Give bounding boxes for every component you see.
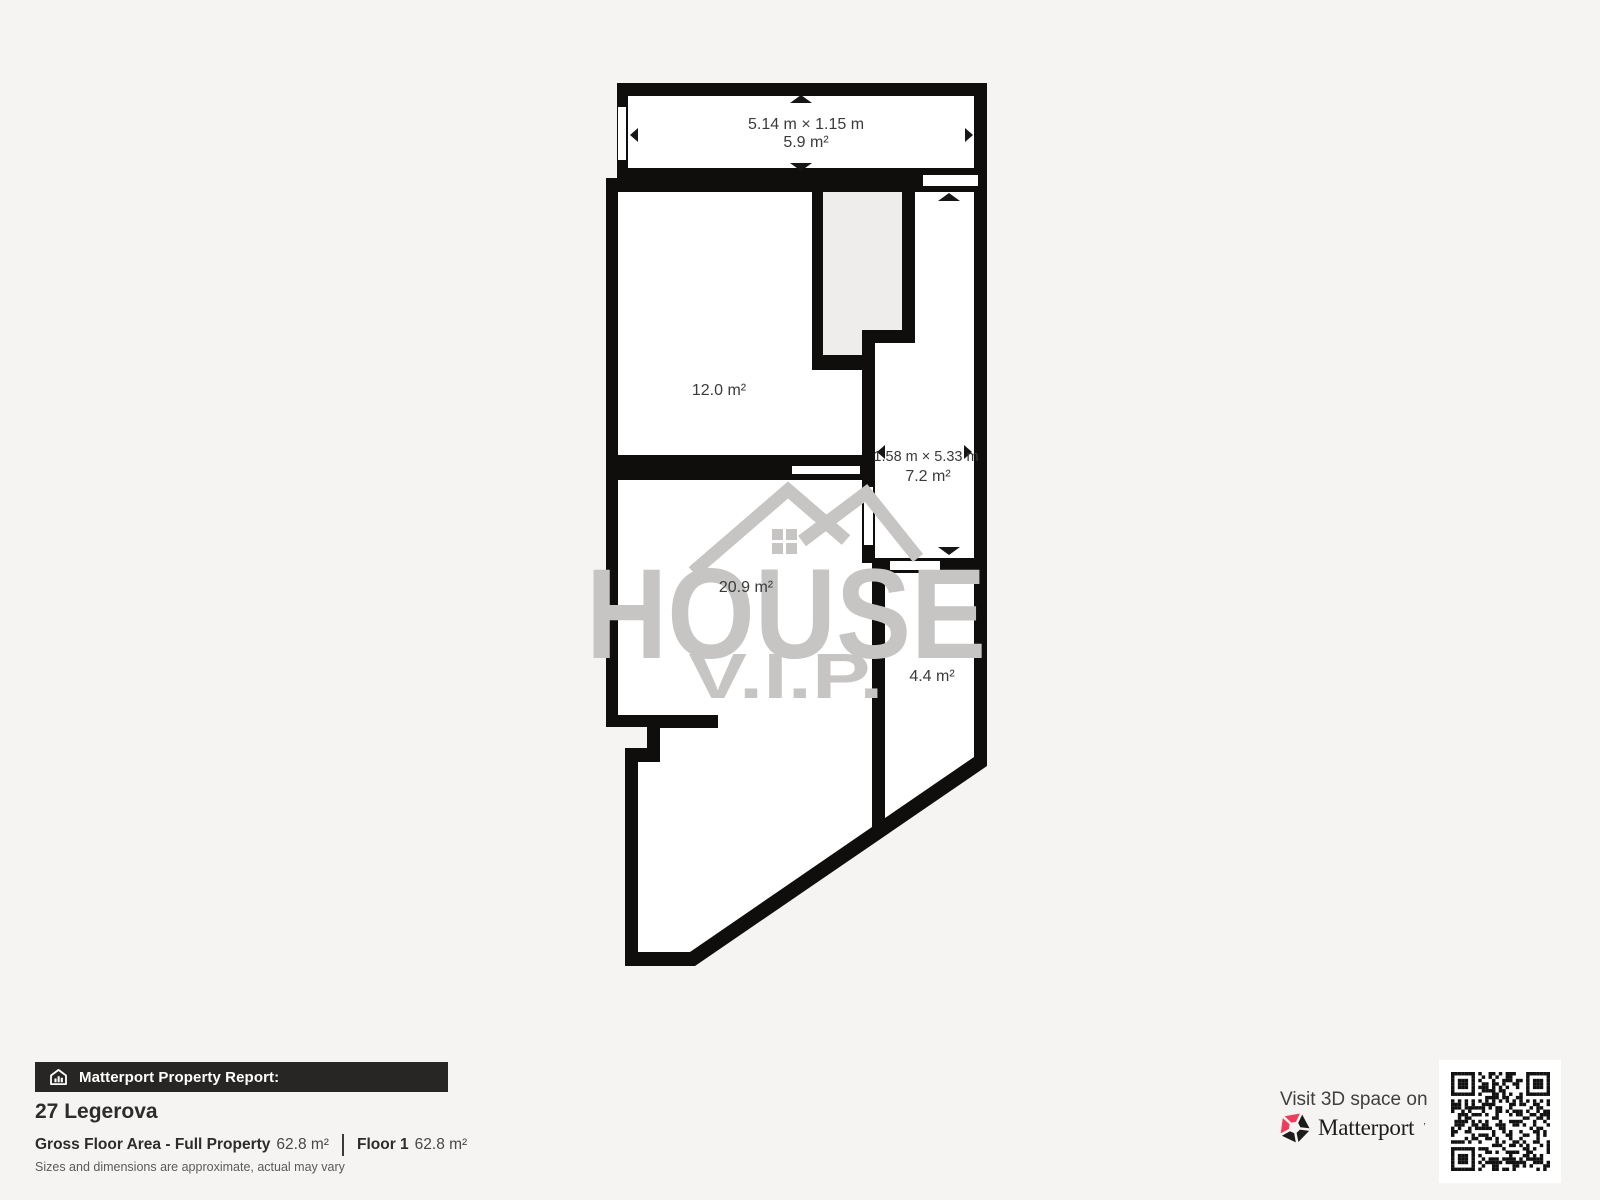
report-title-bar: Matterport Property Report: <box>35 1062 448 1092</box>
watermark-word-vip: V.I.P. <box>689 640 884 712</box>
report-bar-label: Matterport Property Report: <box>79 1069 279 1086</box>
room4-area-label: 4.4 m² <box>909 668 955 685</box>
visit-3d-text: Visit 3D space on <box>1280 1089 1420 1111</box>
room12-door-opening <box>792 466 860 474</box>
room12-area-label: 12.0 m² <box>692 382 747 399</box>
stats-divider <box>342 1134 344 1156</box>
corridor-entry-door-opening <box>923 175 978 186</box>
corridor-dimensions-label: 1.58 m × 5.33 m <box>873 449 978 465</box>
disclaimer-text: Sizes and dimensions are approximate, ac… <box>35 1160 345 1174</box>
gfa-label: Gross Floor Area - Full Property <box>35 1136 270 1154</box>
balcony-window-opening <box>618 107 626 160</box>
qr-card <box>1439 1060 1561 1183</box>
property-report-page: HOUSE V.I.P. 5.14 m × 1.15 m 5.9 m² 12.0… <box>0 0 1600 1200</box>
room20-area-label: 20.9 m² <box>719 579 774 596</box>
trademark-icon: ’ <box>1423 1122 1425 1133</box>
balcony-dimensions-label: 5.14 m × 1.15 m <box>748 116 864 133</box>
matterport-link[interactable]: Matterport’ <box>1279 1112 1426 1143</box>
floor-area-stats: Gross Floor Area - Full Property 62.8 m²… <box>35 1134 467 1156</box>
property-report-house-icon <box>49 1068 68 1086</box>
qr-code <box>1451 1072 1550 1171</box>
balcony-area-label: 5.9 m² <box>783 134 829 151</box>
property-address: 27 Legerova <box>35 1100 158 1124</box>
matterport-logo-icon <box>1279 1112 1310 1143</box>
gfa-value: 62.8 m² <box>276 1136 329 1154</box>
floor-plan: HOUSE V.I.P. 5.14 m × 1.15 m 5.9 m² 12.0… <box>0 0 1600 1200</box>
floor-label: Floor 1 <box>357 1136 409 1154</box>
matterport-wordmark: Matterport <box>1318 1115 1414 1141</box>
corridor-area-label: 7.2 m² <box>905 468 951 485</box>
floor-value: 62.8 m² <box>415 1136 468 1154</box>
